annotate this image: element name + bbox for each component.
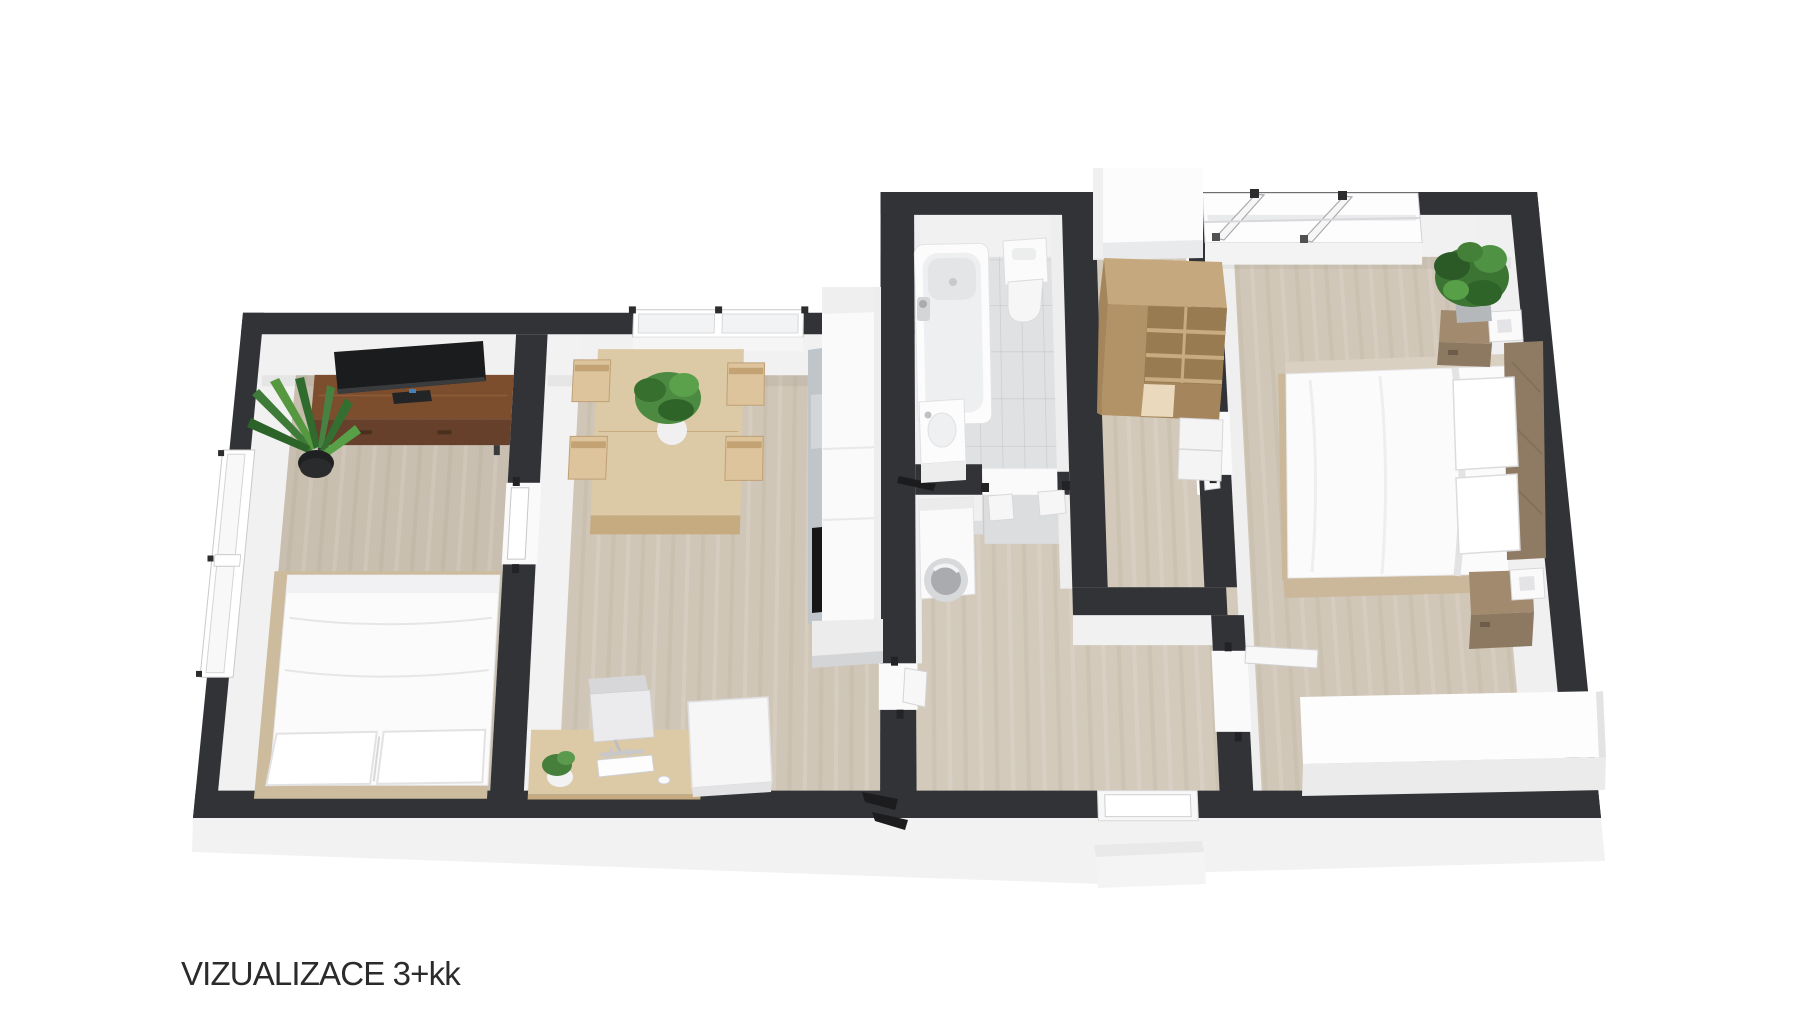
- svg-text:VIZUALIZACE 3+kk: VIZUALIZACE 3+kk: [181, 955, 461, 992]
